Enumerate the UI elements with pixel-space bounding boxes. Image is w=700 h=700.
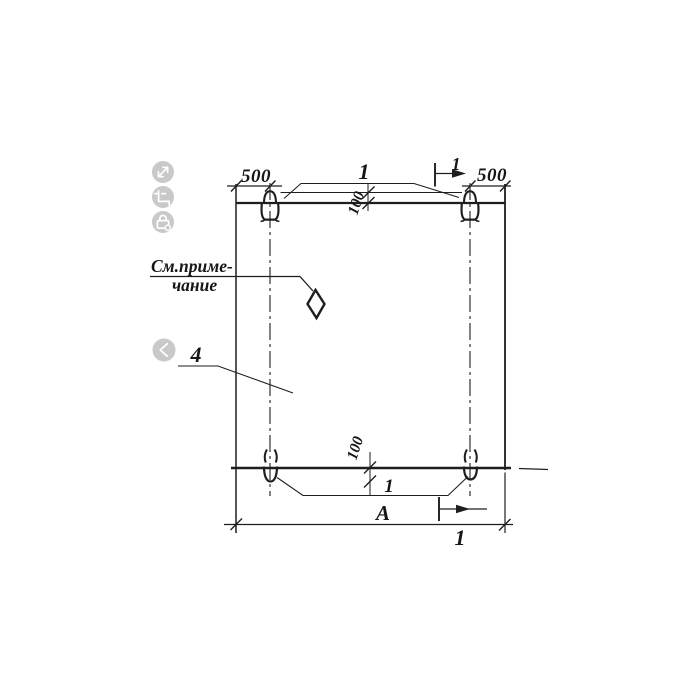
technical-drawing-canvas: 500 500 1 100 1 См.приме- чание 4 1: [0, 0, 700, 700]
dimension-text: 100: [345, 189, 368, 217]
loop-axis-lines: [270, 183, 470, 496]
note-callout: См.приме- чание: [150, 256, 325, 318]
centerline-extension: [519, 469, 548, 470]
dimension-top-left-500: 500: [227, 166, 282, 192]
dimension-text: 100: [344, 434, 367, 462]
chevron-left-icon[interactable]: [153, 339, 176, 362]
section-mark-text: 1: [452, 154, 461, 174]
note-line2: чание: [172, 275, 217, 295]
dimension-loop-offset-bottom: 100: [344, 434, 376, 496]
dimension-text: 500: [241, 166, 271, 187]
crop-icon[interactable]: [152, 186, 174, 208]
lock-icon[interactable]: [152, 211, 174, 233]
expand-icon[interactable]: [152, 161, 174, 183]
diamond-marker: [308, 290, 325, 318]
dimension-top-right-500: 500: [462, 165, 511, 192]
callout-text: 1: [384, 476, 394, 497]
section-mark-bottom: 1: [439, 497, 487, 550]
section-mark-top: 1: [435, 154, 466, 187]
dimension-text: А: [374, 501, 390, 525]
dimension-overall-width: А: [224, 501, 513, 531]
section-mark-text: 1: [455, 525, 466, 550]
callout-text: 1: [359, 159, 370, 184]
dimension-text: 500: [477, 165, 507, 186]
note-line1: См.приме-: [151, 256, 233, 276]
dimension-loop-offset-top: 100: [345, 184, 375, 217]
part-number-text: 4: [190, 342, 202, 367]
